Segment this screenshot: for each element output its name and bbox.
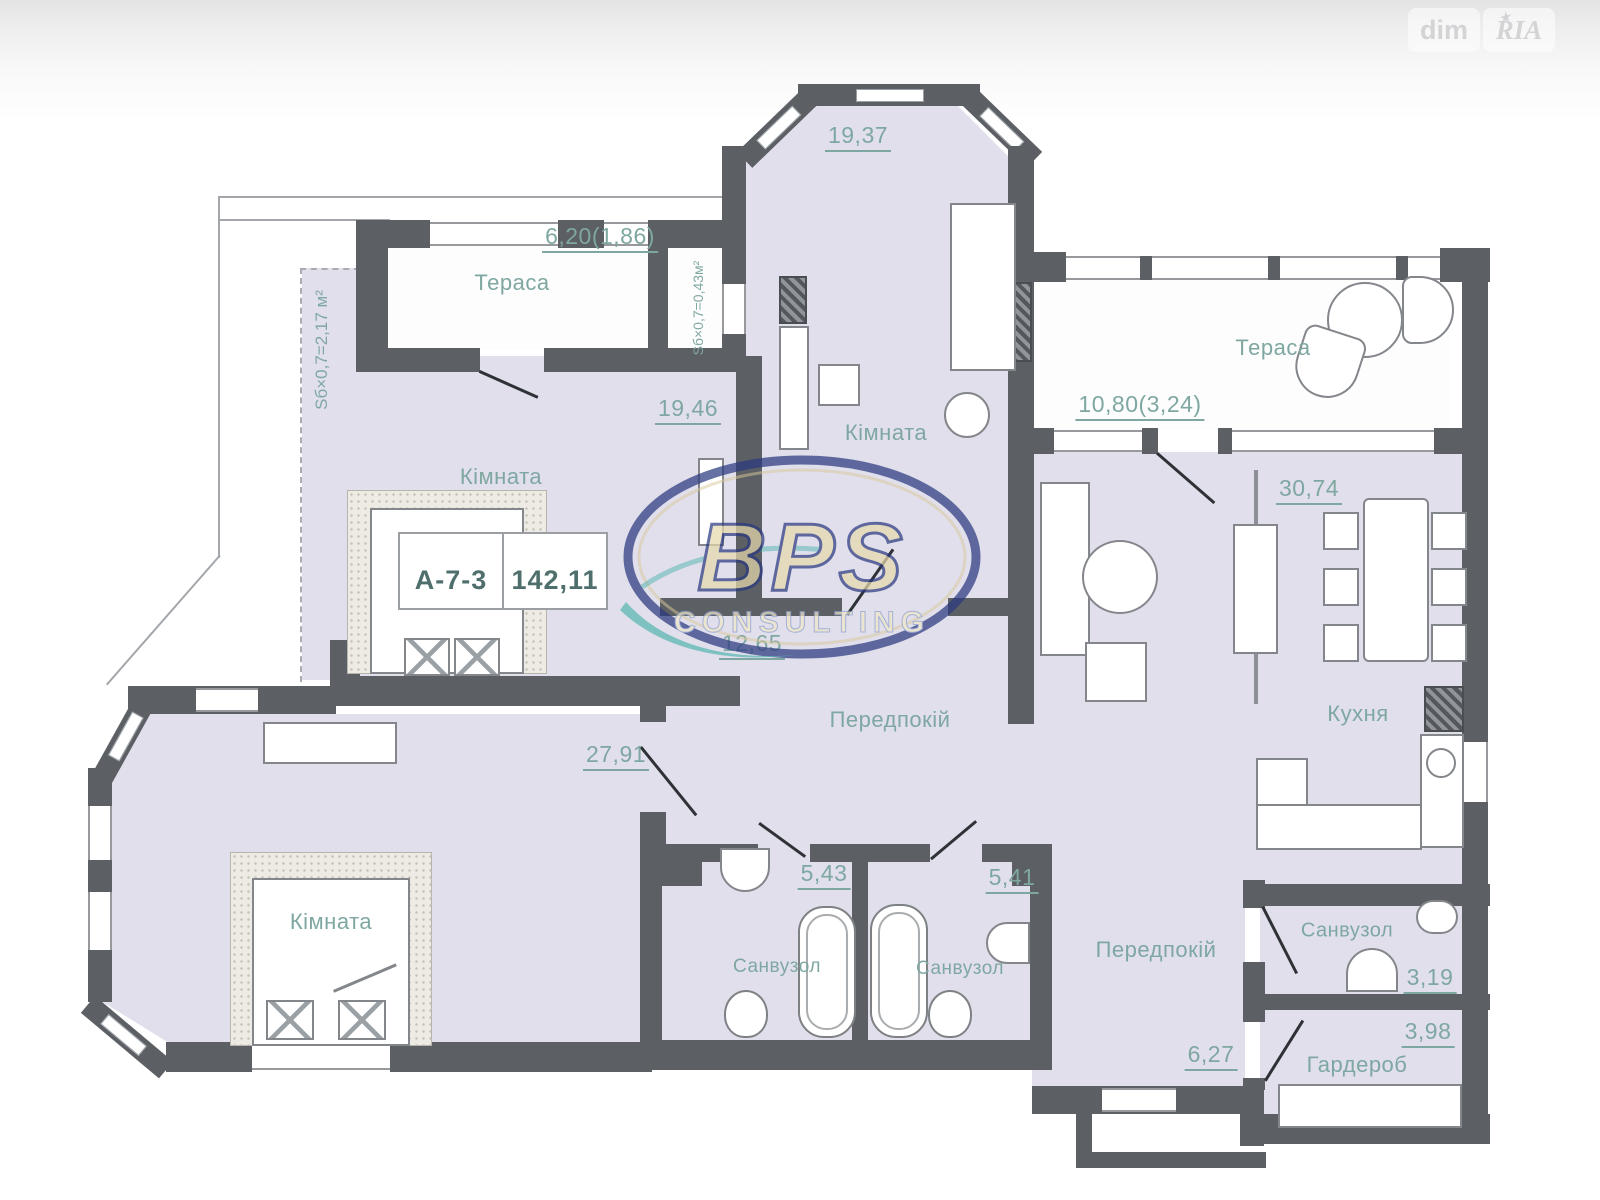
wall [356,220,388,356]
roof-outline-diagonal [106,555,221,686]
wall [640,1040,1052,1070]
wall [544,348,736,372]
area-bath1: 5,43 [798,860,851,890]
wall [88,768,112,1002]
floor-plan: 6,20(1,86) Тераса Sб×0,7=0,43м² Sб×0,7=2… [0,0,1600,1200]
wall [390,1042,652,1072]
tv-cabinet [1233,524,1278,654]
wall [1243,962,1265,1022]
wall [330,676,740,706]
stool [944,392,990,438]
unit-code: А-7-3 [400,534,502,608]
label-hall1: Передпокій [830,707,951,733]
wall [736,356,762,616]
chair [1323,512,1359,550]
watermark-dim: dim [1408,8,1480,52]
window [856,89,924,102]
label-bath3: Санвузол [1301,920,1393,943]
dresser [263,722,397,764]
tall-cabinet [950,203,1016,371]
window [88,892,112,950]
wall [1440,248,1490,282]
wall [1032,252,1066,282]
pillow [454,638,500,676]
wall [1008,614,1034,724]
coffee-table [1085,642,1147,702]
note-niche-area: Sб×0,7=2,17 м² [312,290,332,410]
area-bath3: 3,19 [1404,964,1457,994]
wall [948,598,1010,616]
kitchen-sink [1426,748,1456,778]
sink [1346,948,1398,992]
area-wardrobe: 3,98 [1402,1018,1455,1048]
area-hall2: 6,27 [1185,1041,1238,1071]
roof-outline-left [218,196,220,558]
note-shaft-area: Sб×0,7=0,43м² [690,261,706,356]
unit-total-area: 142,11 [502,534,606,608]
wall [1218,428,1232,454]
pillow [404,638,450,676]
wall [356,348,480,372]
wardrobe-unit [1278,1084,1462,1128]
window [1054,430,1142,452]
area-room-1946: 19,46 [655,395,721,425]
window [196,688,258,712]
side-table [818,364,860,406]
watermark-ria: ★ RIA [1483,8,1555,52]
wall [640,688,666,722]
area-kitchen: 30,74 [1276,475,1342,505]
label-terrace-left: Тераса [474,270,549,296]
wall [798,84,980,106]
label-wardrobe: Гардероб [1307,1052,1408,1078]
pillow [338,1000,386,1040]
label-kitchen: Кухня [1327,701,1388,727]
window [1102,1088,1176,1112]
niche-dashed-line [300,268,302,692]
window [430,222,558,246]
window [1232,430,1434,452]
unit-label-box: А-7-3 142,11 [398,532,608,610]
wardrobe-cabinet [779,276,807,324]
wall [1258,994,1490,1010]
label-room-1937: Кімната [845,420,927,446]
toilet [928,990,972,1038]
area-room-2791: 27,91 [583,741,649,771]
dining-table [1363,498,1429,662]
wall [1032,428,1054,454]
chair [1323,624,1359,662]
area-bath2: 5,41 [986,864,1039,894]
area-hall1: 12,65 [719,630,785,660]
label-room-1946: Кімната [460,464,542,490]
terrace-left-floor [388,246,648,350]
niche-dashed-top [300,268,360,270]
porch-wall-bottom [1076,1152,1266,1168]
label-bath2: Санвузол [916,958,1004,980]
label-bath1: Санвузол [733,956,821,978]
window [722,284,746,334]
area-terrace-left: 6,20(1,86) [542,223,658,253]
cabinet [779,326,809,450]
pillow [266,1000,314,1040]
kitchen-counter [1256,804,1422,850]
armchair [1082,540,1158,614]
area-room-1937: 19,37 [825,122,891,152]
site-watermark: dim ★ RIA [1408,8,1555,52]
area-terrace-right: 10,80(3,24) [1075,391,1204,421]
appliance [1424,686,1464,732]
wall [660,598,842,616]
window [1462,742,1488,802]
wall [388,220,430,248]
wall [1268,256,1280,280]
window [88,806,112,860]
terrace-parapet [1064,256,1440,280]
wall [1243,884,1490,902]
chair [1431,512,1467,550]
chair [1323,568,1359,606]
wall [648,220,722,248]
star-icon: ★ [1497,9,1512,27]
wall [1462,252,1488,1144]
duct-column [698,458,724,546]
wall [648,248,668,352]
wall [166,1042,252,1072]
label-hall2: Передпокій [1096,937,1217,963]
chair [1431,568,1467,606]
label-terrace-right: Тераса [1235,335,1310,361]
wall [1140,256,1152,280]
roof-outline-top [218,196,794,198]
chair [1431,624,1467,662]
toilet [1416,900,1458,934]
toilet [724,990,768,1038]
window [252,1044,390,1070]
wall [662,844,702,886]
label-room-2791: Кімната [290,909,372,935]
wall [640,850,662,1042]
wall [1434,428,1462,454]
wall [1142,428,1158,454]
